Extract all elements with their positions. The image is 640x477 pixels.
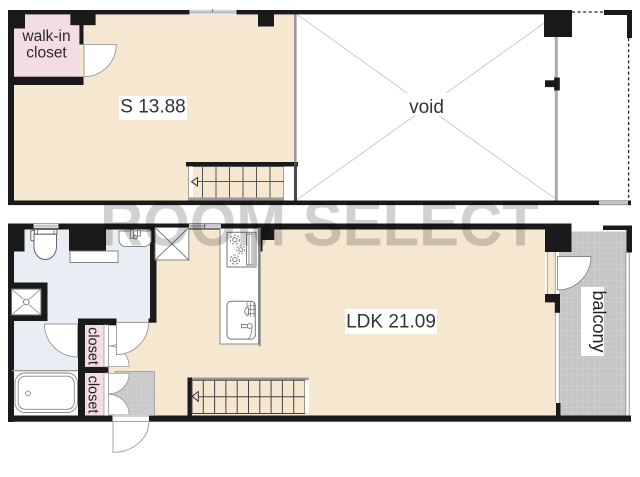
svg-text:closet: closet xyxy=(85,376,101,414)
svg-text:S 13.88: S 13.88 xyxy=(120,97,186,118)
svg-text:LDK 21.09: LDK 21.09 xyxy=(346,312,436,333)
svg-text:closet: closet xyxy=(26,45,67,62)
svg-text:closet: closet xyxy=(85,327,101,365)
svg-text:void: void xyxy=(409,97,444,118)
svg-text:balcony: balcony xyxy=(589,290,609,352)
svg-text:walk-in: walk-in xyxy=(21,28,70,45)
svg-text:ROOM SELECT: ROOM SELECT xyxy=(100,189,539,260)
